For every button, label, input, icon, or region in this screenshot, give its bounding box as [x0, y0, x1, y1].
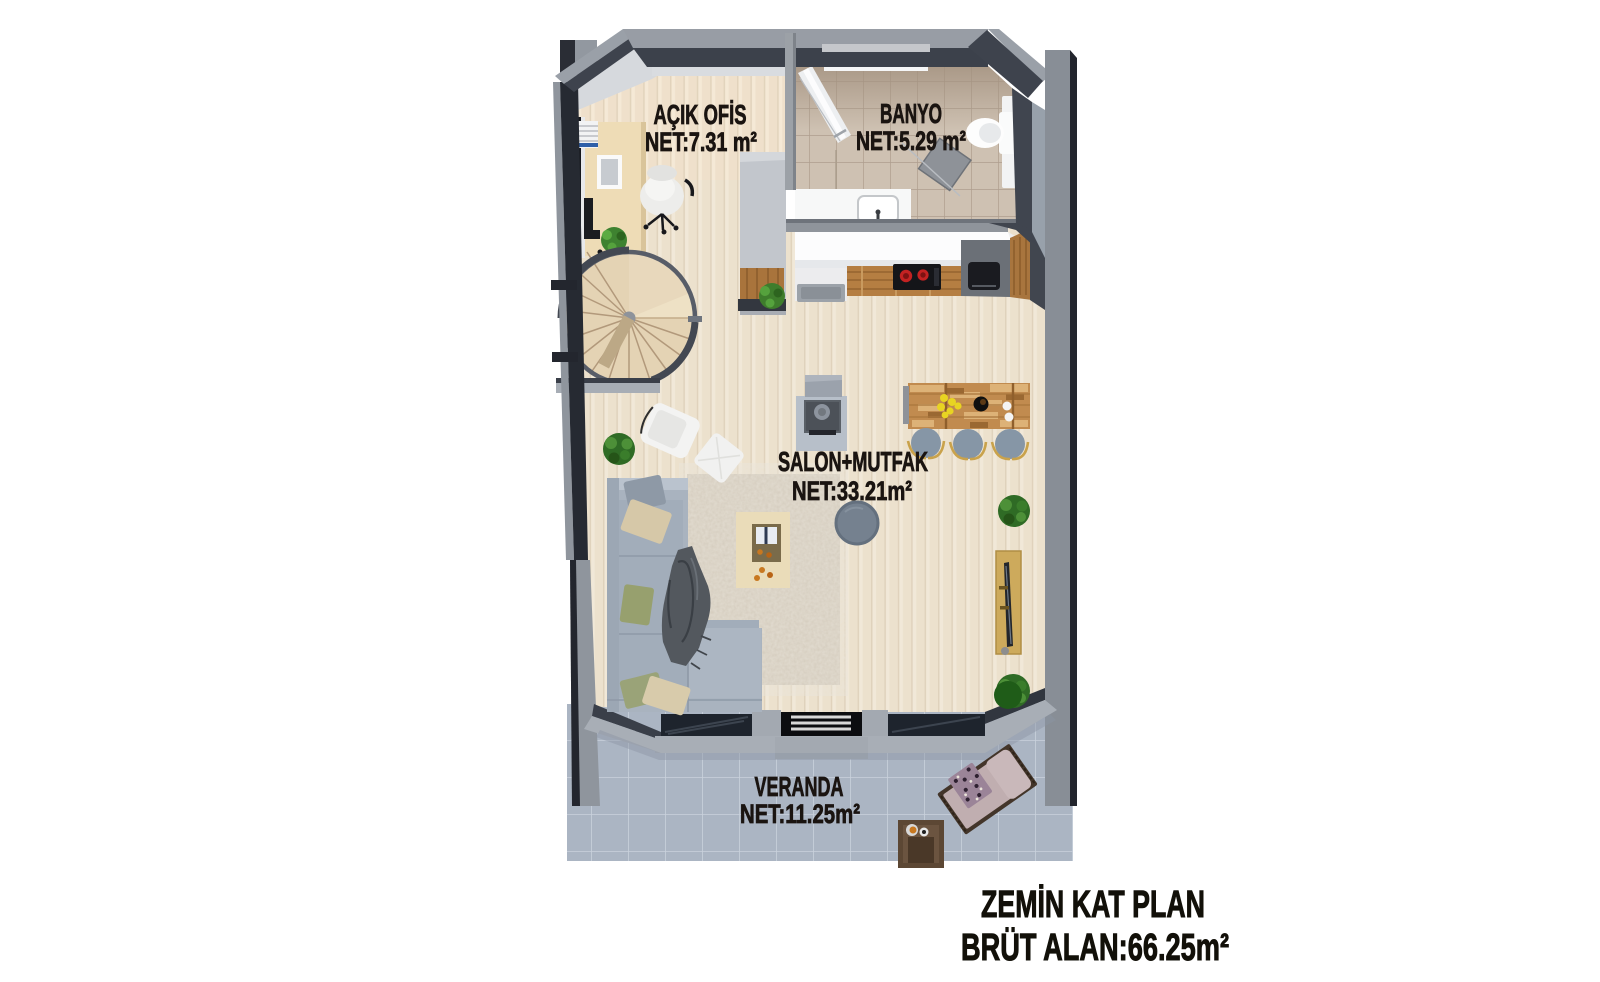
svg-text:VERANDA: VERANDA	[755, 771, 844, 802]
svg-text:ZEMİN KAT PLAN: ZEMİN KAT PLAN	[981, 884, 1205, 926]
svg-text:AÇIK OFİS: AÇIK OFİS	[654, 99, 747, 130]
svg-text:NET:33.21m²: NET:33.21m²	[792, 476, 912, 506]
svg-text:NET:11.25m²: NET:11.25m²	[740, 799, 860, 829]
svg-text:BANYO: BANYO	[880, 98, 942, 129]
svg-text:BRÜT ALAN:66.25m²: BRÜT ALAN:66.25m²	[961, 926, 1229, 969]
svg-text:SALON+MUTFAK: SALON+MUTFAK	[778, 446, 928, 477]
svg-text:NET:7.31 m²: NET:7.31 m²	[645, 127, 757, 157]
svg-text:NET:5.29 m²: NET:5.29 m²	[856, 126, 966, 156]
